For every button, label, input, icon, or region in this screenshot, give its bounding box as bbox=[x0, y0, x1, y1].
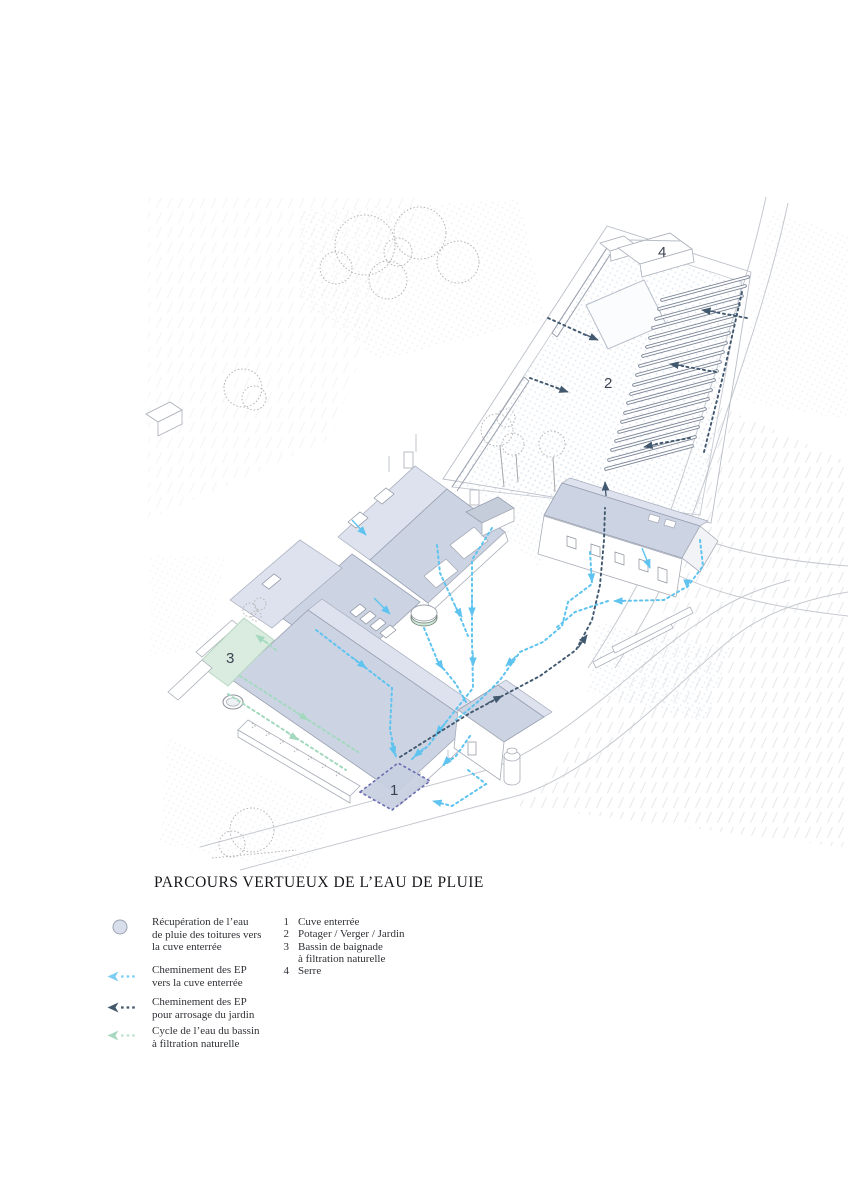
legend-item-garden-path: Cheminement des EP pour arrosage du jard… bbox=[152, 996, 254, 1021]
legend-line: la cuve enterrée bbox=[152, 941, 261, 954]
silo bbox=[504, 748, 520, 785]
legend-line: Récupération de l’eau bbox=[152, 916, 261, 929]
legend-item-pond-cycle: Cycle de l’eau du bassin à filtration na… bbox=[152, 1025, 260, 1050]
door bbox=[468, 742, 476, 755]
legend-line: à filtration naturelle bbox=[152, 1038, 260, 1051]
legend-numbered-item: à filtration naturelle bbox=[280, 953, 405, 965]
marker-2-potager: 2 bbox=[604, 375, 612, 392]
item-label: Cuve enterrée bbox=[298, 916, 359, 928]
item-number bbox=[280, 953, 289, 965]
item-label: Serre bbox=[298, 965, 321, 977]
page-title: PARCOURS VERTUEUX DE L’EAU DE PLUIE bbox=[154, 874, 484, 892]
chimney bbox=[470, 490, 479, 505]
legend-numbered-item: 1 Cuve enterrée bbox=[280, 916, 405, 928]
roof-collection-symbol bbox=[112, 919, 128, 935]
legend-numbered-item: 2 Potager / Verger / Jardin bbox=[280, 928, 405, 940]
marker-3-bassin: 3 bbox=[226, 650, 234, 667]
legend-item-rain-path: Cheminement des EP vers la cuve enterrée bbox=[152, 964, 247, 989]
item-label: Potager / Verger / Jardin bbox=[298, 928, 405, 940]
legend-line: Cheminement des EP bbox=[152, 996, 254, 1009]
marker-4-serre: 4 bbox=[658, 244, 666, 261]
legend-line: vers la cuve enterrée bbox=[152, 977, 247, 990]
poster-page: 1 2 3 4 PARCOURS VERTUEUX DE L’EAU DE PL… bbox=[0, 0, 848, 1200]
pool-deck bbox=[168, 660, 212, 700]
legend-line: Cycle de l’eau du bassin bbox=[152, 1025, 260, 1038]
pond-cycle-arrow-icon bbox=[107, 1030, 136, 1041]
item-number: 4 bbox=[280, 965, 289, 977]
site-axonometric-drawing: 1 2 3 4 bbox=[0, 0, 848, 1200]
marker-1-cuve: 1 bbox=[390, 782, 398, 799]
legend-numbered-item: 3 Bassin de baignade bbox=[280, 941, 405, 953]
item-label: Bassin de baignade bbox=[298, 941, 383, 953]
barn-door bbox=[658, 567, 667, 583]
chimney bbox=[404, 452, 413, 468]
legend-line: Cheminement des EP bbox=[152, 964, 247, 977]
item-number: 1 bbox=[280, 916, 289, 928]
item-label: à filtration naturelle bbox=[298, 953, 385, 965]
item-number: 3 bbox=[280, 941, 289, 953]
garden-path-arrow-icon bbox=[107, 1002, 136, 1013]
rain-collector bbox=[411, 605, 437, 626]
legend-item-collection: Récupération de l’eau de pluie des toitu… bbox=[152, 916, 261, 954]
legend-numbered-list: 1 Cuve enterrée 2 Potager / Verger / Jar… bbox=[280, 916, 405, 977]
legend-line: pour arrosage du jardin bbox=[152, 1009, 254, 1022]
rain-path-arrow-icon bbox=[107, 971, 136, 982]
item-number: 2 bbox=[280, 928, 289, 940]
legend-line: de pluie des toitures vers bbox=[152, 929, 261, 942]
legend-numbered-item: 4 Serre bbox=[280, 965, 405, 977]
